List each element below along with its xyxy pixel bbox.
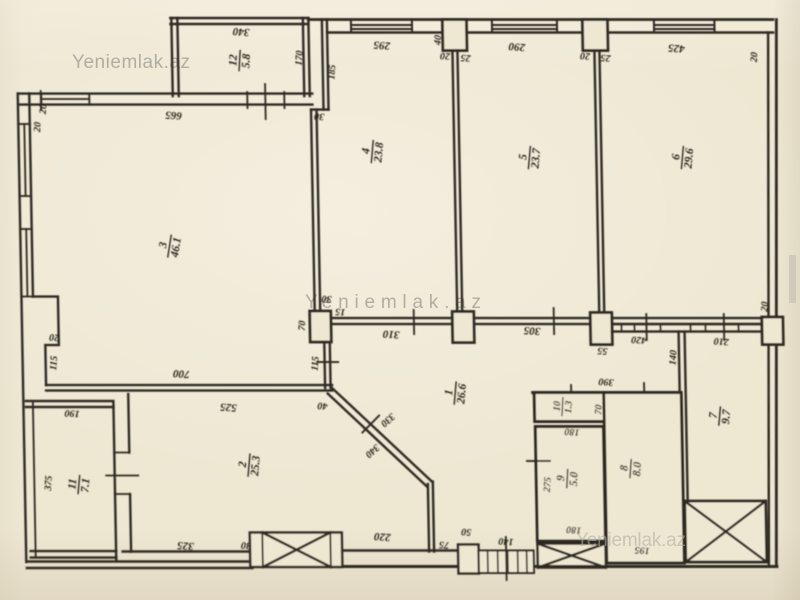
svg-text:7: 7 [707,411,720,419]
svg-text:26.6: 26.6 [455,383,469,406]
svg-text:275: 275 [542,477,554,494]
svg-text:20: 20 [49,331,61,343]
svg-text:9.7: 9.7 [720,408,733,425]
svg-text:325: 325 [177,539,196,552]
svg-text:75: 75 [439,539,450,551]
svg-text:140: 140 [498,535,514,547]
svg-text:1: 1 [443,389,455,396]
svg-text:4: 4 [360,147,373,155]
svg-text:6: 6 [670,153,682,160]
svg-text:115: 115 [48,355,60,370]
svg-text:390: 390 [598,375,615,387]
svg-text:140: 140 [668,350,680,366]
svg-text:11: 11 [66,478,79,490]
svg-text:15: 15 [335,306,346,318]
svg-text:330: 330 [378,410,397,429]
svg-text:5.0: 5.0 [568,471,581,486]
svg-text:70: 70 [297,320,309,331]
svg-text:340: 340 [232,25,251,38]
svg-text:20: 20 [759,301,771,313]
svg-text:40: 40 [317,400,329,412]
svg-text:1.3: 1.3 [563,400,575,413]
svg-text:50: 50 [461,526,472,538]
svg-text:7.1: 7.1 [79,478,92,494]
svg-text:310: 310 [382,327,401,340]
svg-text:20: 20 [580,50,592,62]
svg-text:295: 295 [373,38,392,51]
svg-text:20: 20 [440,50,452,62]
svg-text:9: 9 [555,475,567,482]
svg-text:8.0: 8.0 [631,461,644,477]
svg-text:210: 210 [714,335,731,347]
svg-text:5.8: 5.8 [240,53,253,68]
svg-text:25: 25 [600,52,612,64]
svg-text:180: 180 [564,425,580,437]
svg-text:665: 665 [165,108,183,121]
svg-text:40: 40 [432,35,444,47]
svg-text:115: 115 [310,356,322,371]
svg-text:Yeniemlak.az: Yeniemlak.az [576,530,686,551]
svg-text:420: 420 [631,333,648,345]
svg-text:23.7: 23.7 [529,146,543,170]
svg-text:5: 5 [517,153,529,160]
svg-text:2: 2 [237,461,250,469]
svg-text:375: 375 [43,475,55,492]
svg-text:20: 20 [38,104,50,116]
svg-text:20: 20 [749,52,761,64]
svg-text:305: 305 [523,324,542,337]
svg-text:190: 190 [64,407,80,419]
svg-text:340: 340 [363,441,382,460]
svg-text:10: 10 [552,401,564,412]
svg-text:525: 525 [219,400,237,413]
svg-text:700: 700 [172,367,190,380]
svg-text:12: 12 [227,54,240,67]
svg-text:20: 20 [32,122,44,134]
svg-text:220: 220 [373,530,392,543]
svg-text:170: 170 [294,50,306,66]
svg-text:290: 290 [508,40,527,53]
svg-text:29.6: 29.6 [682,147,696,170]
svg-text:3: 3 [157,241,170,250]
svg-text:25.3: 25.3 [249,455,263,478]
svg-text:425: 425 [667,41,686,54]
svg-text:23.8: 23.8 [372,141,386,164]
svg-text:30: 30 [321,293,333,305]
svg-text:55: 55 [597,345,608,357]
svg-text:25: 25 [460,52,472,64]
